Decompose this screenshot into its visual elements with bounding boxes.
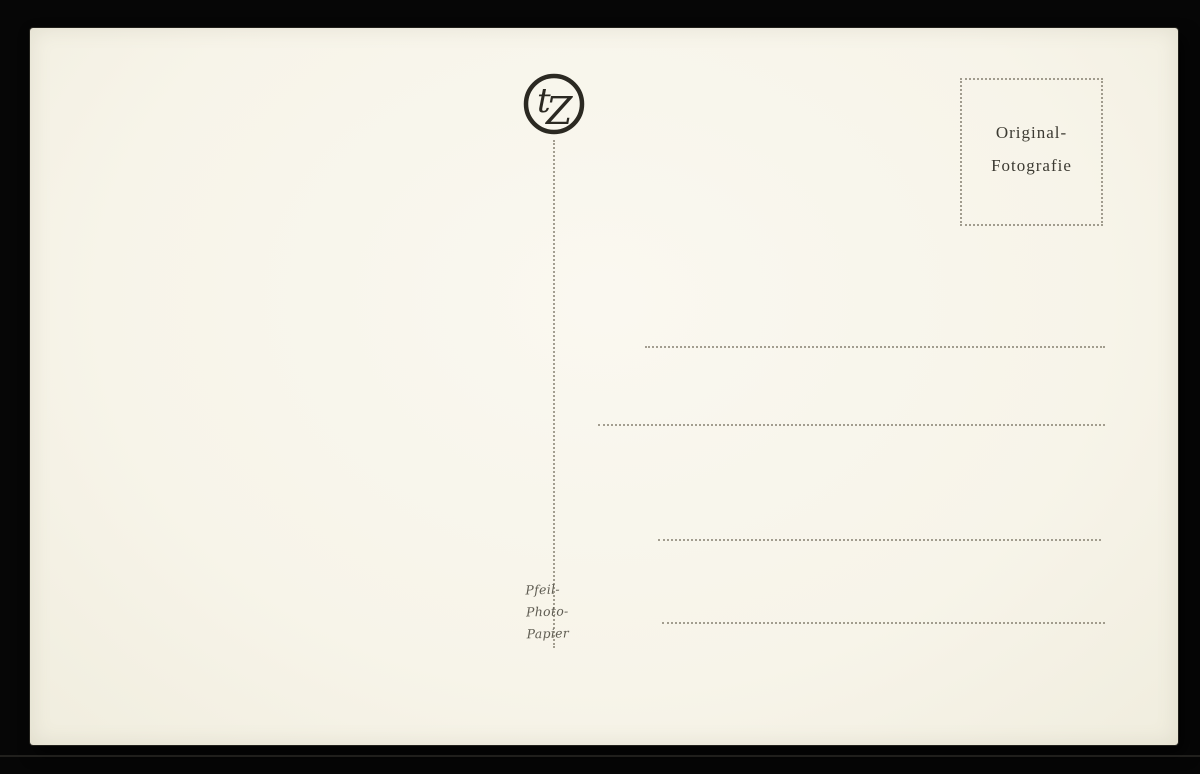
stamp-box-text-line2: Fotografie xyxy=(962,149,1101,182)
stamp-box: Original- Fotografie xyxy=(960,78,1103,226)
scan-backdrop: t Z Original- Fotografie Pfeil- Photo- P… xyxy=(0,0,1200,774)
postcard-back: t Z Original- Fotografie Pfeil- Photo- P… xyxy=(30,28,1178,745)
imprint-line: Pfeil- xyxy=(525,577,636,602)
paper-brand-imprint: Pfeil- Photo- Papier xyxy=(525,577,637,646)
imprint-line: Papier xyxy=(526,621,637,646)
scan-artifact-line xyxy=(0,755,1200,757)
address-line xyxy=(598,424,1105,426)
center-divider-line xyxy=(553,140,555,648)
address-line xyxy=(645,346,1105,348)
address-line xyxy=(662,622,1105,624)
stamp-box-text-line1: Original- xyxy=(962,116,1101,149)
logo-letter-right: Z xyxy=(545,89,573,133)
imprint-line: Photo- xyxy=(526,599,637,624)
address-line xyxy=(658,539,1101,541)
publisher-monogram-logo: t Z xyxy=(520,70,588,138)
